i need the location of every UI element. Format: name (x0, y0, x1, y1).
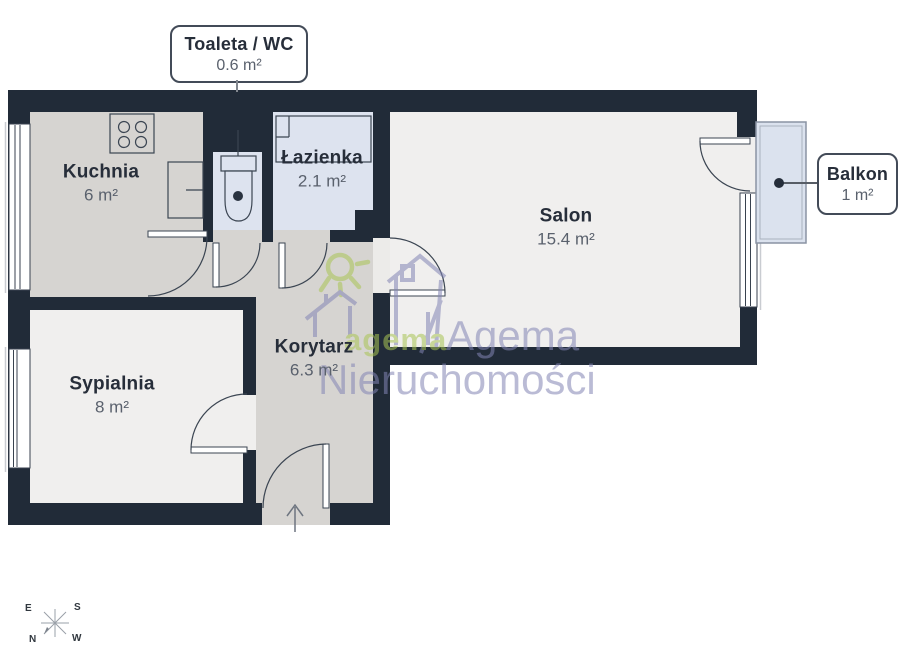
kitchen-window (9, 124, 30, 290)
compass-s-label: S (74, 602, 81, 613)
room-area: 1 m² (842, 186, 874, 206)
room-area: 8 m² (69, 397, 154, 419)
room-label-sypialnia: Sypialnia 8 m² (69, 372, 154, 419)
room-label-lazienka: Łazienka 2.1 m² (281, 146, 363, 193)
room-name: Łazienka (281, 146, 363, 171)
room-area: 0.6 m² (216, 56, 261, 76)
room-label-salon: Salon 15.4 m² (537, 204, 595, 251)
callout-balkon: Balkon 1 m² (817, 153, 898, 215)
bedroom-window (9, 349, 30, 468)
compass-icon: E S N W (25, 602, 82, 645)
room-area: 6.3 m² (275, 360, 354, 382)
room-name: Kuchnia (63, 160, 139, 185)
floor-plan-drawing: agema Agema Nieruchomości E S N W (0, 0, 900, 653)
room-label-kuchnia: Kuchnia 6 m² (63, 160, 139, 207)
watermark-brand: Agema (446, 312, 580, 359)
callout-toaleta-wc: Toaleta / WC 0.6 m² (170, 25, 308, 83)
callout-pointer-line (236, 80, 238, 92)
room-name: Sypialnia (69, 372, 154, 397)
room-name: Toaleta / WC (184, 33, 293, 56)
room-name: Balkon (827, 163, 888, 186)
room-label-korytarz: Korytarz 6.3 m² (275, 335, 354, 382)
salon-window (740, 193, 757, 307)
room-name: Salon (537, 204, 595, 229)
room-name: Korytarz (275, 335, 354, 360)
floor-plan: agema Agema Nieruchomości E S N W Kuchni… (0, 0, 900, 653)
callout-pointer-dot (774, 178, 784, 188)
watermark-logo-text: agema (344, 322, 447, 357)
compass-w-label: W (72, 633, 82, 644)
callout-pointer-line (783, 182, 817, 184)
room-area: 6 m² (63, 185, 139, 207)
watermark-brand-line2: Nieruchomości (318, 356, 596, 403)
compass-e-label: E (25, 603, 32, 614)
compass-n-label: N (29, 634, 36, 645)
room-area: 2.1 m² (281, 171, 363, 193)
room-area: 15.4 m² (537, 229, 595, 251)
